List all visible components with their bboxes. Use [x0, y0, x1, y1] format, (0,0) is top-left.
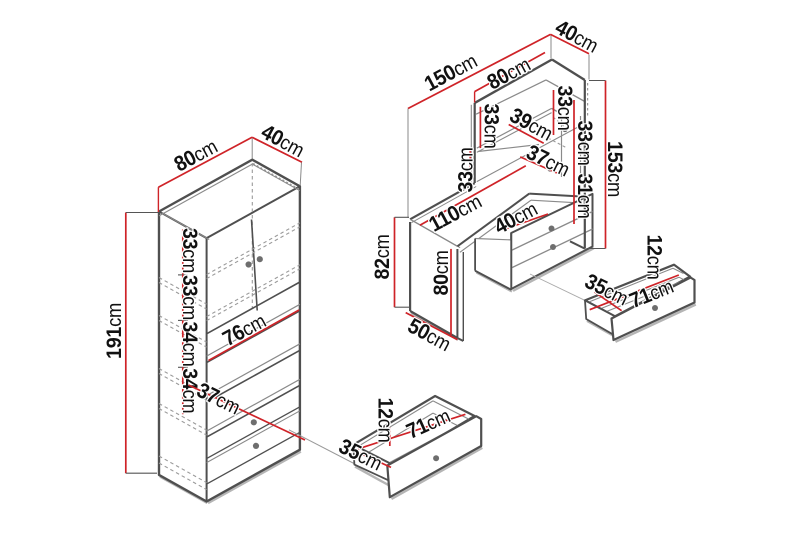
svg-text:33cm: 33cm: [454, 148, 478, 193]
svg-text:33cm: 33cm: [480, 104, 504, 149]
svg-text:80cm: 80cm: [429, 251, 453, 296]
svg-text:191cm: 191cm: [102, 303, 126, 359]
svg-text:31cm: 31cm: [573, 174, 597, 219]
svg-text:34cm: 34cm: [178, 322, 202, 367]
svg-text:12cm: 12cm: [643, 235, 667, 280]
svg-text:12cm: 12cm: [373, 398, 397, 443]
svg-text:33cm: 33cm: [573, 121, 597, 166]
svg-text:82cm: 82cm: [370, 235, 394, 280]
svg-text:33cm: 33cm: [178, 228, 202, 273]
svg-text:33cm: 33cm: [178, 275, 202, 320]
svg-text:153cm: 153cm: [603, 141, 627, 197]
